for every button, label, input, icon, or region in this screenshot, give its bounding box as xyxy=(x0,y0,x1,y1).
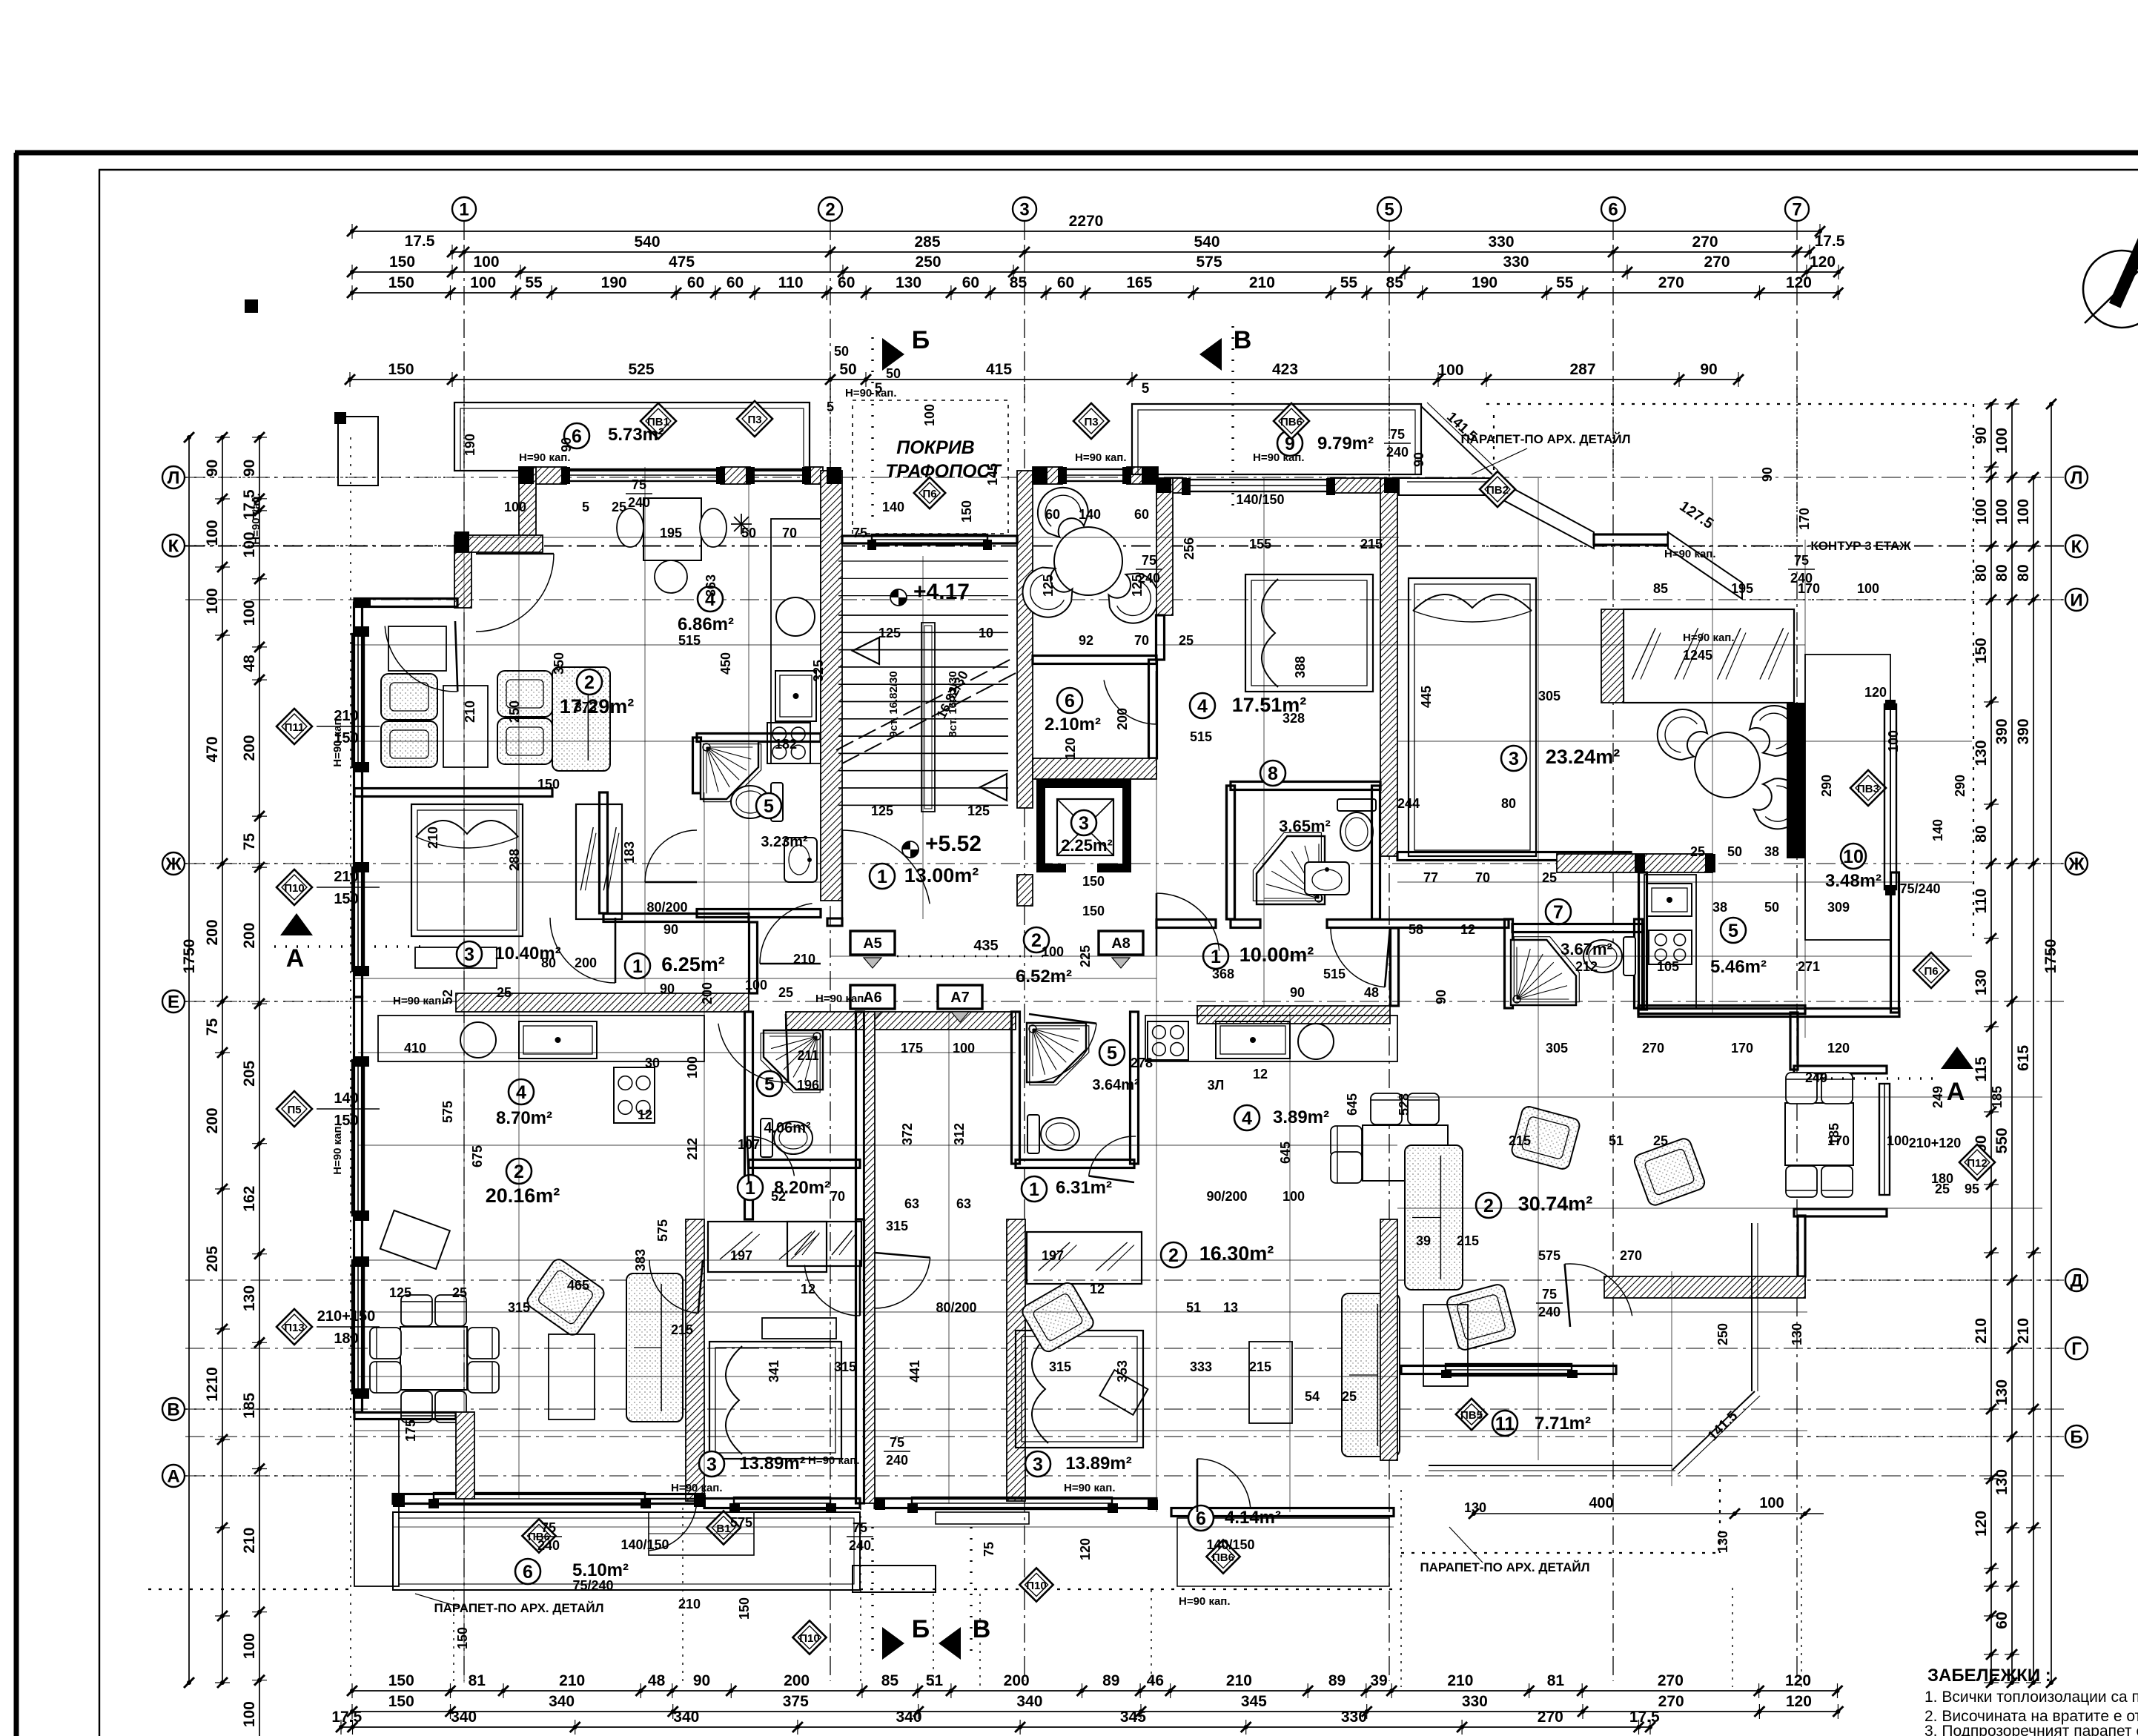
svg-text:270: 270 xyxy=(1658,1693,1684,1710)
svg-text:85: 85 xyxy=(1653,581,1668,596)
svg-text:200: 200 xyxy=(784,1672,810,1689)
svg-text:210: 210 xyxy=(1249,274,1275,291)
svg-text:120: 120 xyxy=(1063,738,1078,760)
svg-text:145: 145 xyxy=(985,463,1000,486)
svg-text:312: 312 xyxy=(952,1123,967,1145)
svg-text:5: 5 xyxy=(1384,199,1394,219)
svg-text:А: А xyxy=(286,944,305,973)
svg-text:515: 515 xyxy=(1323,967,1346,981)
svg-text:100: 100 xyxy=(241,1701,258,1727)
svg-text:120: 120 xyxy=(1786,274,1812,291)
svg-text:215: 215 xyxy=(1457,1233,1479,1248)
svg-text:212: 212 xyxy=(1575,959,1598,974)
svg-text:5.46m²: 5.46m² xyxy=(1710,957,1767,977)
svg-text:340: 340 xyxy=(549,1693,575,1710)
svg-text:197: 197 xyxy=(730,1248,752,1263)
svg-text:П10: П10 xyxy=(284,882,304,895)
svg-text:390: 390 xyxy=(1993,718,2010,744)
svg-text:353: 353 xyxy=(1115,1360,1130,1382)
svg-text:54: 54 xyxy=(1305,1389,1320,1404)
svg-text:3: 3 xyxy=(1509,749,1519,769)
svg-text:10.00m²: 10.00m² xyxy=(1240,944,1314,966)
svg-text:305: 305 xyxy=(1538,689,1561,703)
svg-text:51: 51 xyxy=(1609,1133,1624,1148)
svg-text:6.25m²: 6.25m² xyxy=(661,953,725,975)
svg-text:400: 400 xyxy=(1589,1495,1613,1511)
svg-text:39: 39 xyxy=(1370,1672,1387,1689)
svg-text:90: 90 xyxy=(1434,990,1449,1004)
svg-text:17.5: 17.5 xyxy=(1815,233,1845,250)
svg-text:215: 215 xyxy=(1360,537,1383,551)
svg-text:89: 89 xyxy=(1328,1672,1346,1689)
svg-text:240: 240 xyxy=(886,1453,908,1468)
svg-text:140/150: 140/150 xyxy=(620,1537,669,1552)
svg-text:1210: 1210 xyxy=(204,1367,221,1402)
svg-text:60: 60 xyxy=(962,274,979,291)
svg-text:Л: Л xyxy=(168,468,180,488)
svg-text:140/150: 140/150 xyxy=(1236,492,1284,507)
svg-text:5.73m²: 5.73m² xyxy=(608,425,664,445)
svg-text:423: 423 xyxy=(1272,361,1298,378)
svg-text:17.5: 17.5 xyxy=(405,233,435,250)
svg-text:ПВ6: ПВ6 xyxy=(1212,1551,1234,1564)
svg-text:Н=90 кап.: Н=90 кап. xyxy=(845,387,897,400)
svg-text:150: 150 xyxy=(537,777,560,792)
svg-text:195: 195 xyxy=(660,526,682,540)
svg-text:150: 150 xyxy=(455,1627,470,1649)
svg-text:388: 388 xyxy=(1293,656,1308,678)
svg-text:3.89m²: 3.89m² xyxy=(1273,1107,1329,1127)
svg-text:Н=90 кап.: Н=90 кап. xyxy=(1075,451,1127,464)
svg-text:38: 38 xyxy=(1764,844,1779,859)
svg-text:140: 140 xyxy=(1930,819,1945,841)
svg-text:150: 150 xyxy=(1973,637,1990,663)
svg-text:470: 470 xyxy=(204,736,221,762)
svg-text:410: 410 xyxy=(404,1041,426,1056)
svg-text:130: 130 xyxy=(1715,1531,1730,1553)
svg-text:150: 150 xyxy=(388,274,414,291)
svg-text:П12: П12 xyxy=(1967,1157,1987,1170)
svg-text:В: В xyxy=(973,1615,991,1643)
svg-text:60: 60 xyxy=(838,274,855,291)
svg-text:3.64m²: 3.64m² xyxy=(1092,1077,1139,1093)
svg-text:25: 25 xyxy=(1342,1389,1357,1404)
svg-text:210: 210 xyxy=(426,826,440,849)
svg-text:110: 110 xyxy=(1973,889,1990,914)
svg-text:190: 190 xyxy=(1472,274,1497,291)
svg-text:75: 75 xyxy=(1142,553,1156,568)
svg-text:130: 130 xyxy=(1790,1323,1804,1345)
svg-text:Л: Л xyxy=(2071,468,2083,488)
svg-text:П10: П10 xyxy=(799,1632,819,1645)
svg-text:244: 244 xyxy=(1397,796,1420,811)
svg-text:80: 80 xyxy=(541,955,556,970)
svg-text:130: 130 xyxy=(1973,740,1990,766)
svg-text:210+150: 210+150 xyxy=(317,1308,375,1325)
svg-text:75: 75 xyxy=(1794,553,1809,568)
svg-text:П3: П3 xyxy=(747,414,761,426)
svg-text:100: 100 xyxy=(241,600,258,626)
svg-text:315: 315 xyxy=(886,1219,908,1233)
svg-text:75: 75 xyxy=(632,477,646,492)
svg-text:315: 315 xyxy=(834,1359,856,1374)
svg-text:162: 162 xyxy=(241,1186,258,1212)
svg-text:278: 278 xyxy=(1131,1056,1153,1070)
svg-text:250: 250 xyxy=(507,700,522,723)
svg-text:150: 150 xyxy=(388,1693,414,1710)
svg-text:30.74m²: 30.74m² xyxy=(1518,1193,1593,1215)
svg-text:130: 130 xyxy=(1973,970,1990,995)
svg-text:330: 330 xyxy=(1503,254,1529,271)
svg-text:6.52m²: 6.52m² xyxy=(1016,967,1072,987)
svg-text:П6: П6 xyxy=(922,488,936,500)
svg-text:А5: А5 xyxy=(863,935,882,952)
svg-text:А8: А8 xyxy=(1111,935,1131,952)
svg-text:90: 90 xyxy=(1290,985,1305,1000)
svg-text:К: К xyxy=(168,536,179,556)
svg-text:190: 190 xyxy=(463,434,477,456)
svg-text:КОНТУР 3 ЕТАЖ: КОНТУР 3 ЕТАЖ xyxy=(1810,539,1911,553)
svg-text:183: 183 xyxy=(622,841,637,864)
svg-text:16.30m²: 16.30m² xyxy=(1199,1242,1274,1265)
svg-text:150: 150 xyxy=(959,500,974,523)
svg-text:И: И xyxy=(2070,590,2082,610)
svg-text:85: 85 xyxy=(1010,274,1027,291)
svg-text:+4.17: +4.17 xyxy=(913,580,970,604)
svg-text:340: 340 xyxy=(451,1709,477,1726)
svg-text:170: 170 xyxy=(1797,508,1812,530)
svg-text:270: 270 xyxy=(1538,1709,1563,1726)
svg-text:175: 175 xyxy=(901,1041,923,1056)
svg-text:10: 10 xyxy=(1843,847,1864,867)
svg-text:1: 1 xyxy=(877,867,887,887)
svg-text:100: 100 xyxy=(1042,944,1064,959)
svg-text:120: 120 xyxy=(1827,1041,1850,1056)
svg-text:200: 200 xyxy=(204,919,221,945)
svg-text:75/240: 75/240 xyxy=(1899,881,1940,896)
svg-text:ЗАБЕЛЕЖКИ :: ЗАБЕЛЕЖКИ : xyxy=(1927,1666,2051,1686)
svg-text:240: 240 xyxy=(537,1538,560,1553)
svg-text:675: 675 xyxy=(470,1145,485,1167)
svg-text:90: 90 xyxy=(559,437,574,452)
svg-text:210: 210 xyxy=(1973,1318,1990,1344)
svg-text:25: 25 xyxy=(778,985,793,1000)
svg-text:575: 575 xyxy=(440,1101,455,1123)
svg-text:575: 575 xyxy=(730,1515,752,1530)
svg-text:60: 60 xyxy=(1134,507,1149,522)
svg-text:46: 46 xyxy=(1147,1672,1164,1689)
svg-text:256: 256 xyxy=(1182,537,1197,560)
svg-text:1. Всички топлоизолации са по: 1. Всички топлоизолации са по ОВ изчис xyxy=(1924,1689,2138,1706)
svg-text:50: 50 xyxy=(834,344,849,359)
svg-text:330: 330 xyxy=(1341,1709,1367,1726)
svg-text:290: 290 xyxy=(1819,775,1834,797)
svg-text:140/150: 140/150 xyxy=(1206,1537,1254,1552)
svg-text:140: 140 xyxy=(1079,507,1101,522)
svg-text:196: 196 xyxy=(797,1078,819,1093)
svg-text:80/200: 80/200 xyxy=(936,1300,976,1315)
svg-text:11: 11 xyxy=(1495,1414,1515,1434)
svg-text:185: 185 xyxy=(241,1393,258,1419)
svg-text:1: 1 xyxy=(1029,1179,1039,1200)
svg-text:575: 575 xyxy=(1538,1248,1561,1263)
svg-text:5.10m²: 5.10m² xyxy=(572,1560,629,1580)
svg-text:Н=90 кап.: Н=90 кап. xyxy=(1064,1482,1116,1494)
svg-text:100: 100 xyxy=(1437,362,1463,379)
svg-text:345: 345 xyxy=(1120,1709,1146,1726)
svg-text:328: 328 xyxy=(1283,711,1305,726)
svg-text:2.25m²: 2.25m² xyxy=(1061,836,1113,855)
svg-text:1: 1 xyxy=(459,199,469,219)
svg-text:58: 58 xyxy=(1409,922,1423,937)
svg-text:2: 2 xyxy=(1168,1245,1179,1266)
svg-text:75: 75 xyxy=(241,833,258,851)
svg-text:90: 90 xyxy=(1411,452,1426,467)
svg-text:340: 340 xyxy=(673,1709,699,1726)
svg-text:345: 345 xyxy=(1241,1693,1267,1710)
svg-text:110: 110 xyxy=(778,274,804,291)
svg-text:50: 50 xyxy=(839,361,856,378)
svg-text:270: 270 xyxy=(1658,1672,1684,1689)
svg-text:ПВ3: ПВ3 xyxy=(1857,783,1879,795)
svg-text:100: 100 xyxy=(1993,428,2010,454)
svg-text:285: 285 xyxy=(914,233,940,251)
svg-text:170: 170 xyxy=(1731,1041,1753,1056)
svg-text:150: 150 xyxy=(389,254,415,271)
svg-text:4: 4 xyxy=(1242,1108,1252,1129)
svg-text:170: 170 xyxy=(1827,1133,1850,1148)
svg-text:9.79m²: 9.79m² xyxy=(1317,434,1374,454)
svg-text:450: 450 xyxy=(718,652,733,675)
svg-text:270: 270 xyxy=(1642,1041,1664,1056)
svg-text:80: 80 xyxy=(1973,825,1990,842)
svg-text:ПВ6: ПВ6 xyxy=(1280,416,1303,428)
svg-text:465: 465 xyxy=(567,1278,589,1293)
svg-text:270: 270 xyxy=(1620,1248,1642,1263)
svg-text:350: 350 xyxy=(552,652,566,675)
svg-text:39: 39 xyxy=(1416,1233,1431,1248)
svg-text:525: 525 xyxy=(628,361,654,378)
svg-text:1245: 1245 xyxy=(1683,648,1712,663)
svg-text:200: 200 xyxy=(575,955,597,970)
svg-text:80: 80 xyxy=(2015,564,2032,581)
svg-text:Б: Б xyxy=(912,326,930,354)
svg-text:89: 89 xyxy=(1102,1672,1119,1689)
svg-text:23.24m²: 23.24m² xyxy=(1546,746,1621,768)
svg-text:75: 75 xyxy=(204,1018,221,1036)
svg-text:197: 197 xyxy=(1042,1248,1064,1263)
svg-text:1: 1 xyxy=(632,956,643,977)
svg-text:75: 75 xyxy=(1390,427,1405,442)
svg-text:12: 12 xyxy=(638,1107,652,1122)
svg-text:3.65m²: 3.65m² xyxy=(1279,817,1331,835)
svg-text:615: 615 xyxy=(2015,1045,2032,1071)
svg-text:130: 130 xyxy=(1464,1500,1486,1515)
svg-text:375: 375 xyxy=(783,1693,809,1710)
svg-text:120: 120 xyxy=(1078,1538,1093,1560)
svg-text:330: 330 xyxy=(1488,233,1514,251)
svg-text:100: 100 xyxy=(1759,1495,1784,1511)
svg-text:25: 25 xyxy=(1179,633,1194,648)
svg-text:ПАРАПЕТ-ПО АРХ. ДЕТАЙЛ: ПАРАПЕТ-ПО АРХ. ДЕТАЙЛ xyxy=(1460,432,1630,446)
svg-text:95: 95 xyxy=(1965,1182,1979,1196)
svg-text:210: 210 xyxy=(559,1672,585,1689)
svg-text:П5: П5 xyxy=(287,1104,301,1116)
svg-text:100: 100 xyxy=(922,404,937,426)
svg-text:4.14m²: 4.14m² xyxy=(1225,1508,1281,1528)
svg-text:205: 205 xyxy=(204,1246,221,1272)
svg-text:125: 125 xyxy=(967,804,990,818)
svg-text:130: 130 xyxy=(241,1285,258,1311)
svg-text:П11: П11 xyxy=(285,721,305,734)
svg-text:81: 81 xyxy=(469,1672,486,1689)
svg-text:Ж: Ж xyxy=(165,854,182,874)
svg-text:100: 100 xyxy=(685,1056,700,1079)
svg-text:2: 2 xyxy=(825,199,835,219)
svg-text:645: 645 xyxy=(1345,1093,1360,1116)
svg-text:290: 290 xyxy=(1953,775,1967,797)
svg-text:52: 52 xyxy=(440,990,455,1004)
svg-text:Д: Д xyxy=(2070,1270,2082,1291)
svg-text:105: 105 xyxy=(1657,959,1679,974)
svg-text:2.10m²: 2.10m² xyxy=(1045,715,1101,735)
svg-text:3.23m²: 3.23m² xyxy=(761,834,808,850)
svg-text:70: 70 xyxy=(782,526,797,540)
svg-text:515: 515 xyxy=(678,633,701,648)
svg-text:340: 340 xyxy=(1016,1693,1042,1710)
svg-text:100: 100 xyxy=(1283,1189,1305,1204)
svg-text:60: 60 xyxy=(1045,507,1060,522)
svg-text:441: 441 xyxy=(907,1360,922,1382)
svg-text:3: 3 xyxy=(1019,199,1029,219)
svg-text:Н=90 кап.: Н=90 кап. xyxy=(250,493,262,545)
svg-text:165: 165 xyxy=(1126,274,1152,291)
svg-text:10: 10 xyxy=(979,626,993,640)
svg-text:341: 341 xyxy=(767,1360,781,1382)
svg-text:75: 75 xyxy=(853,526,867,540)
svg-text:271: 271 xyxy=(1798,959,1820,974)
svg-text:ПВ5: ПВ5 xyxy=(1460,1409,1483,1422)
svg-text:575: 575 xyxy=(655,1219,670,1242)
svg-text:6.86m²: 6.86m² xyxy=(678,614,734,635)
svg-text:Н=90 кап.: Н=90 кап. xyxy=(1253,451,1305,464)
svg-text:85: 85 xyxy=(1386,274,1404,291)
svg-text:100: 100 xyxy=(204,588,221,614)
svg-text:215: 215 xyxy=(1509,1133,1531,1148)
svg-text:130: 130 xyxy=(1993,1469,2010,1495)
svg-text:315: 315 xyxy=(1049,1359,1071,1374)
svg-text:70: 70 xyxy=(830,1189,845,1204)
svg-text:340: 340 xyxy=(896,1709,921,1726)
svg-text:А7: А7 xyxy=(950,990,970,1006)
svg-text:Б: Б xyxy=(2070,1427,2082,1447)
svg-text:200: 200 xyxy=(1004,1672,1030,1689)
svg-text:540: 540 xyxy=(634,233,660,251)
svg-text:Н=90 кап.: Н=90 кап. xyxy=(331,715,344,767)
svg-text:330: 330 xyxy=(1462,1693,1488,1710)
svg-text:215: 215 xyxy=(671,1322,693,1337)
svg-text:25: 25 xyxy=(1935,1182,1950,1196)
svg-text:100: 100 xyxy=(2015,499,2032,525)
svg-text:1: 1 xyxy=(745,1178,755,1199)
svg-text:90: 90 xyxy=(241,460,258,477)
svg-text:80: 80 xyxy=(1993,564,2010,581)
svg-text:325: 325 xyxy=(811,660,826,682)
svg-text:90: 90 xyxy=(1760,467,1775,482)
svg-text:13.89m²: 13.89m² xyxy=(739,1454,805,1474)
svg-text:528: 528 xyxy=(1397,1093,1411,1116)
svg-text:63: 63 xyxy=(904,1196,919,1211)
svg-text:90: 90 xyxy=(204,460,221,477)
svg-text:ПОКРИВ: ПОКРИВ xyxy=(896,437,975,458)
svg-text:75: 75 xyxy=(982,1542,996,1557)
svg-text:270: 270 xyxy=(1692,233,1718,251)
svg-text:120: 120 xyxy=(1786,1693,1812,1710)
svg-text:60: 60 xyxy=(1993,1611,2010,1629)
svg-text:75: 75 xyxy=(890,1435,904,1450)
svg-text:Н=90 кап.: Н=90 кап. xyxy=(393,995,445,1007)
svg-text:25: 25 xyxy=(612,500,626,514)
svg-text:210: 210 xyxy=(1447,1672,1473,1689)
svg-text:8: 8 xyxy=(1268,763,1278,784)
svg-text:Н=90 кап.: Н=90 кап. xyxy=(1179,1595,1231,1608)
svg-text:180: 180 xyxy=(334,1331,358,1347)
svg-text:13.89m²: 13.89m² xyxy=(1065,1454,1131,1474)
svg-text:100: 100 xyxy=(204,520,221,546)
svg-text:Н=90 кап.: Н=90 кап. xyxy=(331,1123,344,1175)
svg-text:100: 100 xyxy=(1993,499,2010,525)
svg-text:100: 100 xyxy=(1857,581,1879,596)
svg-text:90: 90 xyxy=(693,1672,710,1689)
svg-text:5: 5 xyxy=(764,796,774,817)
svg-text:60: 60 xyxy=(687,274,704,291)
svg-text:А: А xyxy=(1947,1078,1965,1106)
svg-text:373: 373 xyxy=(575,700,597,715)
svg-text:210: 210 xyxy=(1226,1672,1252,1689)
svg-text:25: 25 xyxy=(1542,870,1557,885)
svg-text:55: 55 xyxy=(1340,274,1358,291)
svg-text:120: 120 xyxy=(1973,1511,1990,1537)
svg-text:ПАРАПЕТ-ПО АРХ. ДЕТАЙЛ: ПАРАПЕТ-ПО АРХ. ДЕТАЙЛ xyxy=(1420,1560,1589,1574)
svg-text:60: 60 xyxy=(1057,274,1074,291)
svg-text:645: 645 xyxy=(1278,1142,1293,1164)
svg-text:305: 305 xyxy=(1546,1041,1568,1056)
svg-text:210: 210 xyxy=(2015,1318,2032,1344)
svg-text:240: 240 xyxy=(849,1538,871,1553)
svg-text:2: 2 xyxy=(1483,1196,1494,1216)
svg-text:3. Подпрозоречният парапет е о: 3. Подпрозоречният парапет е от кота п xyxy=(1924,1723,2138,1736)
svg-text:3.48m²: 3.48m² xyxy=(1825,871,1881,891)
svg-text:170: 170 xyxy=(1798,581,1820,596)
svg-text:288: 288 xyxy=(507,849,522,871)
svg-text:215: 215 xyxy=(1249,1359,1271,1374)
svg-text:140: 140 xyxy=(334,1090,358,1107)
svg-text:390: 390 xyxy=(2015,718,2032,744)
svg-text:309: 309 xyxy=(1827,900,1850,915)
svg-text:250: 250 xyxy=(915,254,941,271)
svg-text:150: 150 xyxy=(737,1597,752,1620)
svg-text:125: 125 xyxy=(878,626,901,640)
svg-text:17.5: 17.5 xyxy=(1629,1709,1660,1726)
svg-text:80: 80 xyxy=(1501,796,1516,811)
svg-text:125: 125 xyxy=(871,804,893,818)
svg-text:200: 200 xyxy=(700,982,715,1004)
svg-text:200: 200 xyxy=(241,923,258,949)
svg-text:7: 7 xyxy=(1792,199,1801,219)
svg-text:90: 90 xyxy=(1700,361,1717,378)
svg-text:368: 368 xyxy=(1212,967,1234,981)
svg-text:7: 7 xyxy=(1553,902,1563,923)
